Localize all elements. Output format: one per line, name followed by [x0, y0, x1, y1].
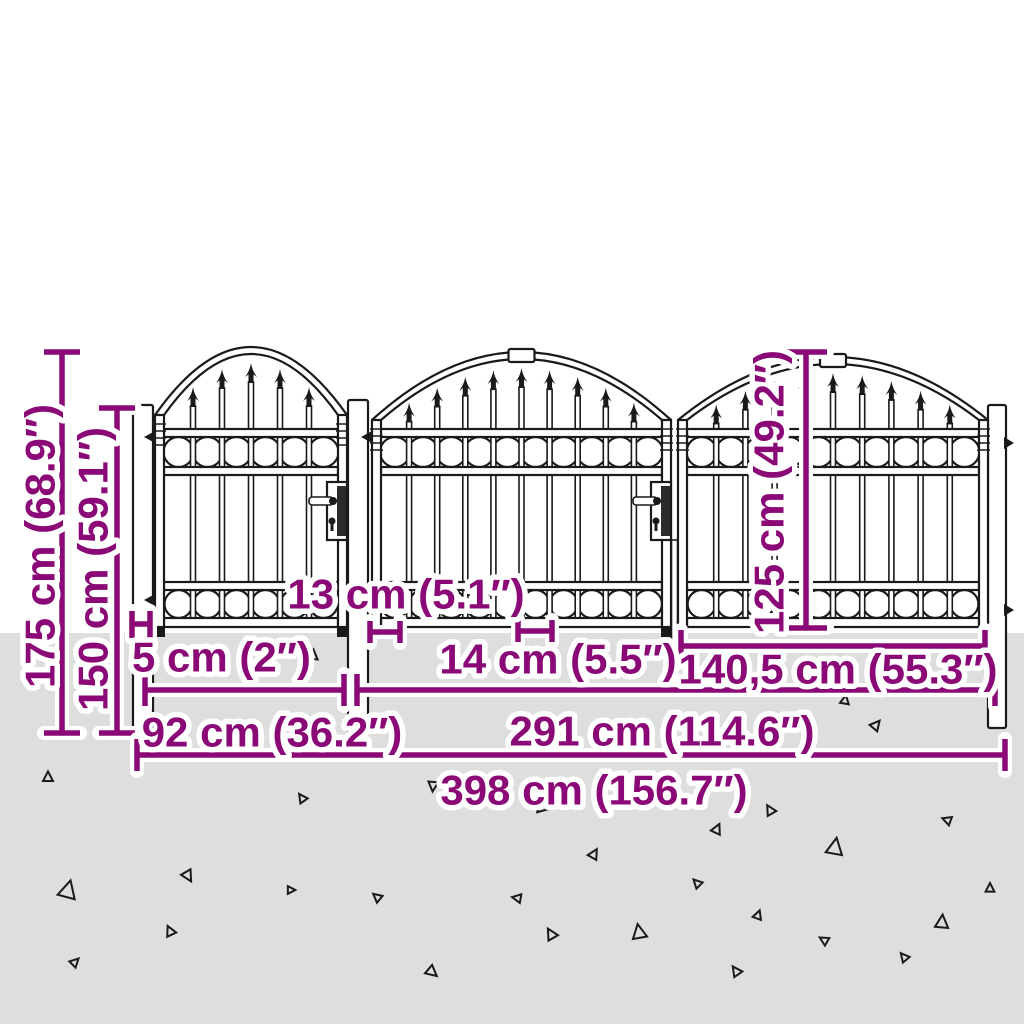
keyhole-icon — [655, 523, 658, 531]
gate-rail — [164, 618, 338, 627]
gate-stile — [155, 415, 164, 627]
gate-stile — [979, 420, 988, 627]
gate-rail — [164, 467, 338, 475]
diagram-canvas: 175 cm (68.9″) 150 cm (59.1″) 125 cm (49… — [0, 0, 1024, 1024]
dim-label-bar-gap: 14 cm (5.5″) — [439, 636, 676, 683]
gate-dimension-diagram: 175 cm (68.9″) 150 cm (59.1″) 125 cm (49… — [0, 0, 1024, 1024]
gate-rail — [381, 467, 662, 475]
handle-pivot — [653, 497, 661, 505]
dim-label-post-width: 5 cm (2″) — [132, 634, 311, 681]
gate-rail — [687, 582, 979, 590]
dim-label-panel-height: 125 cm (49.2″) — [746, 350, 793, 634]
dim-label-double-gate-width: 291 cm (114.6″) — [510, 708, 815, 755]
gate-rail — [164, 429, 338, 437]
handle-pivot — [329, 497, 337, 505]
gate-foot — [337, 627, 348, 637]
dim-label-top-gap: 13 cm (5.1″) — [287, 571, 524, 618]
arch-clamp — [509, 349, 535, 362]
dim-label-post-height: 150 cm (59.1″) — [70, 427, 117, 711]
gate-lock-plate — [661, 486, 670, 536]
gate-stile — [678, 420, 687, 627]
gate-rail — [687, 429, 979, 437]
gate-rail — [687, 467, 979, 475]
dim-label-side-gate-width: 92 cm (36.2″) — [142, 709, 403, 756]
gate-lock-plate — [337, 486, 346, 536]
dim-label-total-width: 398 cm (156.7″) — [440, 767, 747, 814]
gate-rail — [381, 429, 662, 437]
keyhole-icon — [331, 523, 334, 531]
dim-label-total-height: 175 cm (68.9″) — [17, 404, 64, 688]
dim-label-leaf-width: 140,5 cm (55.3″) — [679, 646, 998, 693]
